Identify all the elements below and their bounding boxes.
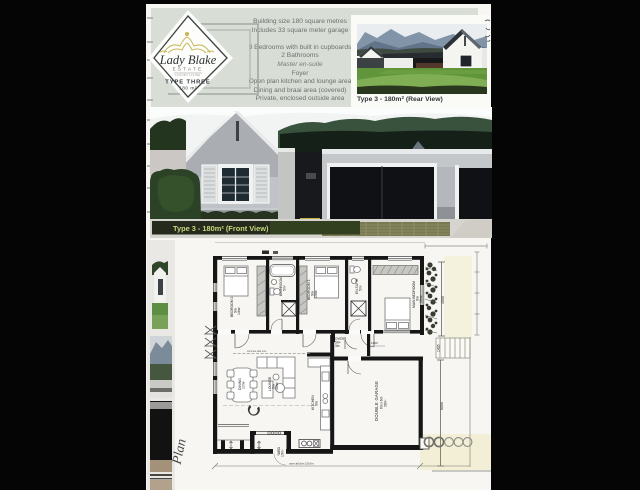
svg-text:over all dim 19.5m: over all dim 19.5m <box>289 462 314 466</box>
svg-text:LUXURY LIVING: LUXURY LIVING <box>175 74 200 77</box>
svg-text:1200: 1200 <box>371 341 378 345</box>
svg-text:34m²: 34m² <box>275 381 279 390</box>
svg-text:10m²: 10m² <box>242 380 246 389</box>
svg-text:5m²: 5m² <box>359 284 363 291</box>
svg-text:16m²: 16m² <box>419 294 423 303</box>
svg-text:concrete slab over: concrete slab over <box>247 350 267 353</box>
svg-text:3m: 3m <box>335 344 340 348</box>
svg-text:10m²: 10m² <box>281 449 285 457</box>
svg-text:33m²: 33m² <box>384 400 388 407</box>
svg-text:MAIN BEDROOM: MAIN BEDROOM <box>412 281 416 308</box>
svg-text:14m²: 14m² <box>237 306 241 315</box>
svg-text:5m²: 5m² <box>283 284 287 291</box>
svg-text:Lady Blake: Lady Blake <box>159 53 217 67</box>
svg-text:6000: 6000 <box>440 402 444 410</box>
svg-text:9m: 9m <box>315 401 319 406</box>
svg-text:ESTATE: ESTATE <box>173 67 204 72</box>
svg-text:14m²: 14m² <box>314 289 318 298</box>
svg-text:DOUBLE GARAGE: DOUBLE GARAGE <box>374 381 379 421</box>
svg-text:TYPE THREE: TYPE THREE <box>165 80 210 86</box>
svg-text:180 m²: 180 m² <box>179 86 197 92</box>
svg-text:Type 3 - 180m² (Front View): Type 3 - 180m² (Front View) <box>173 224 269 233</box>
svg-text:4500: 4500 <box>441 296 445 304</box>
svg-text:1435: 1435 <box>437 344 441 352</box>
